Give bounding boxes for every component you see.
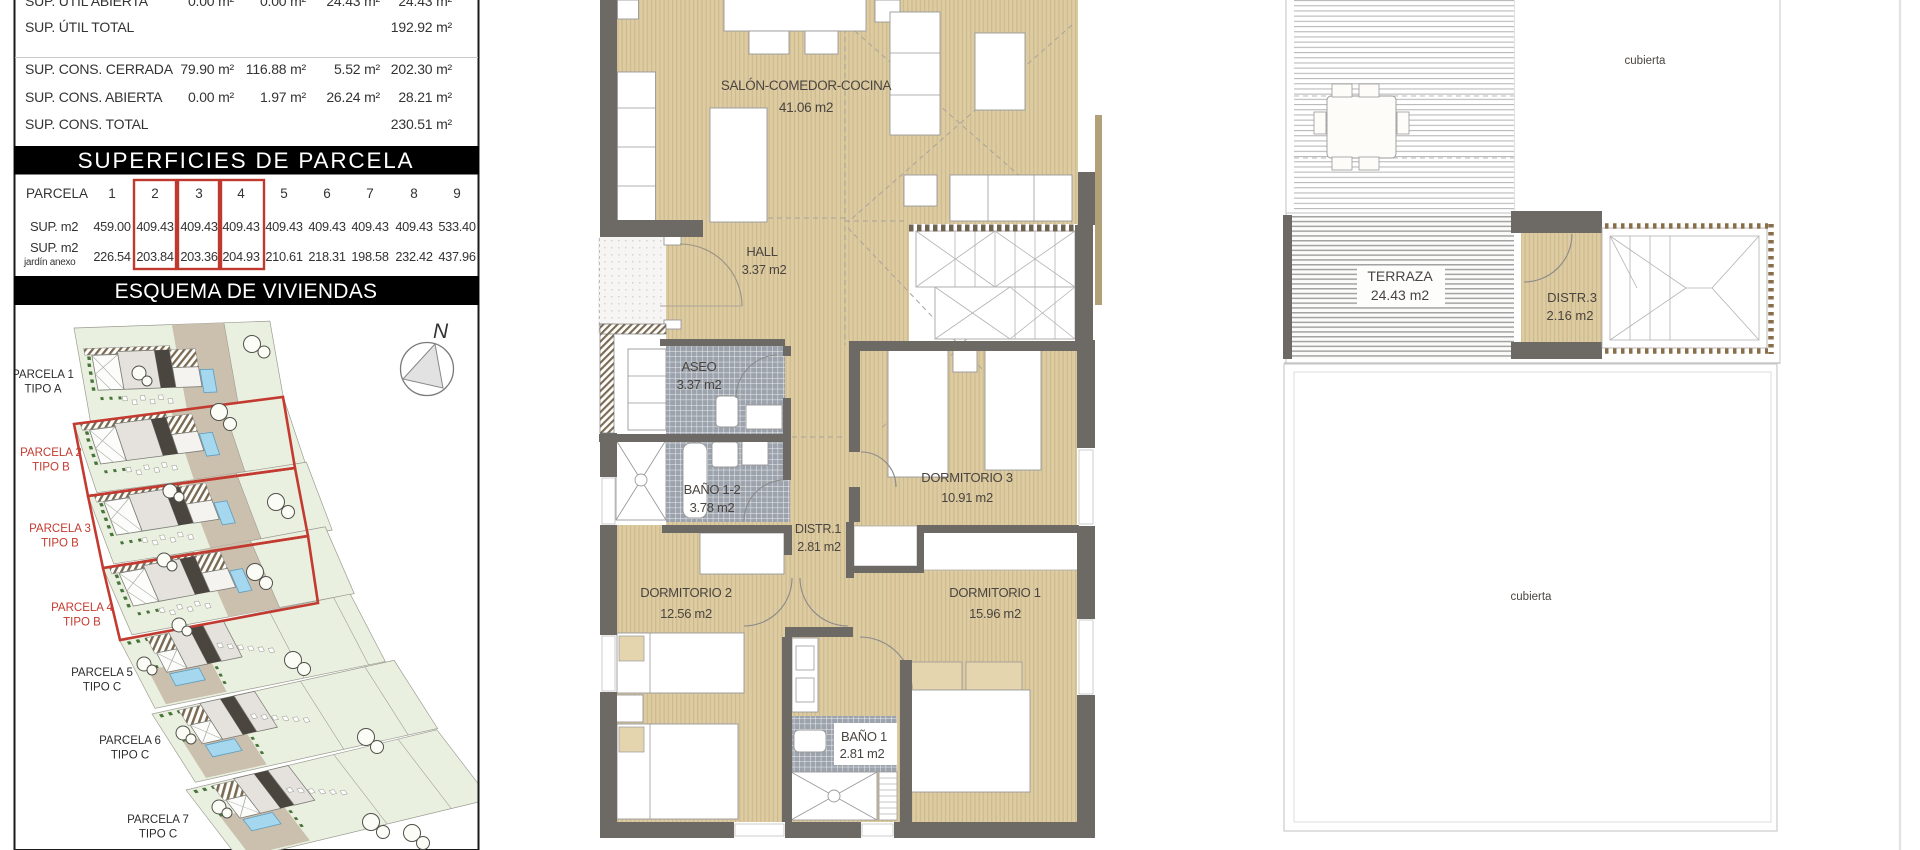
- svg-text:ESQUEMA DE VIVIENDAS: ESQUEMA DE VIVIENDAS: [115, 280, 378, 303]
- svg-text:41.06 m2: 41.06 m2: [779, 100, 833, 115]
- svg-text:5.52 m²: 5.52 m²: [334, 61, 381, 77]
- svg-text:459.00: 459.00: [93, 219, 131, 234]
- svg-text:409.43: 409.43: [351, 219, 389, 234]
- svg-text:BAÑO 1: BAÑO 1: [841, 729, 887, 744]
- svg-text:437.96: 437.96: [438, 249, 476, 264]
- svg-text:TIPO B: TIPO B: [41, 538, 79, 550]
- svg-text:0.00 m²: 0.00 m²: [188, 89, 235, 105]
- svg-text:218.31: 218.31: [308, 249, 346, 264]
- svg-text:SUPERFICIES DE PARCELA: SUPERFICIES DE PARCELA: [78, 148, 415, 173]
- svg-text:SUP. m2: SUP. m2: [30, 219, 78, 234]
- svg-text:DORMITORIO 3: DORMITORIO 3: [921, 470, 1013, 485]
- svg-text:2.81 m2: 2.81 m2: [797, 540, 841, 554]
- svg-text:232.42: 232.42: [395, 249, 433, 264]
- svg-text:HALL: HALL: [746, 244, 777, 259]
- svg-text:5: 5: [280, 186, 288, 201]
- svg-text:116.88 m²: 116.88 m²: [246, 61, 307, 77]
- svg-text:3.37 m2: 3.37 m2: [677, 377, 722, 392]
- svg-text:409.43: 409.43: [222, 219, 260, 234]
- svg-text:28.21 m²: 28.21 m²: [398, 89, 452, 105]
- svg-text:DORMITORIO 1: DORMITORIO 1: [949, 585, 1041, 600]
- svg-text:203.36: 203.36: [180, 249, 218, 264]
- svg-text:9: 9: [453, 186, 461, 201]
- svg-text:202.30 m²: 202.30 m²: [391, 61, 453, 77]
- svg-text:3: 3: [195, 186, 203, 201]
- svg-text:2.16 m2: 2.16 m2: [1547, 308, 1594, 323]
- svg-text:12.56 m2: 12.56 m2: [660, 606, 712, 621]
- svg-text:409.43: 409.43: [136, 219, 174, 234]
- svg-text:cubierta: cubierta: [1625, 55, 1667, 67]
- svg-text:7: 7: [366, 186, 374, 201]
- svg-text:533.40: 533.40: [438, 219, 476, 234]
- svg-text:4: 4: [237, 186, 245, 201]
- svg-text:26.24 m²: 26.24 m²: [326, 89, 380, 105]
- svg-text:10.91 m2: 10.91 m2: [941, 490, 993, 505]
- svg-text:3.37 m2: 3.37 m2: [742, 262, 787, 277]
- svg-text:ASEO: ASEO: [682, 359, 717, 374]
- svg-text:SUP. m2: SUP. m2: [30, 240, 78, 255]
- svg-text:203.84: 203.84: [136, 249, 174, 264]
- svg-text:BAÑO 1-2: BAÑO 1-2: [684, 482, 741, 497]
- svg-text:PARCELA 7: PARCELA 7: [127, 814, 189, 826]
- svg-text:SUP. CONS. CERRADA: SUP. CONS. CERRADA: [25, 61, 174, 77]
- svg-text:8: 8: [410, 186, 418, 201]
- svg-text:6: 6: [323, 186, 331, 201]
- svg-text:79.90 m²: 79.90 m²: [180, 61, 234, 77]
- svg-text:15.96 m2: 15.96 m2: [969, 606, 1021, 621]
- svg-text:0.00 m²: 0.00 m²: [260, 0, 307, 9]
- svg-text:3.78 m2: 3.78 m2: [690, 500, 735, 515]
- svg-text:N: N: [433, 320, 449, 343]
- svg-text:409.43: 409.43: [395, 219, 433, 234]
- svg-text:2.81 m2: 2.81 m2: [840, 746, 885, 761]
- svg-text:TIPO C: TIPO C: [111, 750, 149, 762]
- svg-text:TERRAZA: TERRAZA: [1367, 268, 1433, 284]
- svg-text:PARCELA 2: PARCELA 2: [20, 447, 82, 459]
- svg-text:2: 2: [151, 186, 159, 201]
- svg-text:SUP. CONS. ABIERTA: SUP. CONS. ABIERTA: [25, 89, 163, 105]
- svg-text:SUP. ÚTIL TOTAL: SUP. ÚTIL TOTAL: [25, 19, 134, 35]
- svg-text:cubierta: cubierta: [1511, 591, 1553, 603]
- svg-text:PARCELA 1: PARCELA 1: [12, 369, 74, 381]
- svg-text:192.92 m²: 192.92 m²: [391, 19, 453, 35]
- svg-text:409.43: 409.43: [265, 219, 303, 234]
- svg-text:TIPO B: TIPO B: [32, 462, 70, 474]
- svg-text:210.61: 210.61: [265, 249, 303, 264]
- svg-text:DORMITORIO 2: DORMITORIO 2: [640, 585, 732, 600]
- svg-text:24.43 m2: 24.43 m2: [1371, 287, 1430, 303]
- svg-text:jardín anexo: jardín anexo: [23, 257, 76, 268]
- svg-text:226.54: 226.54: [93, 249, 131, 264]
- svg-text:TIPO C: TIPO C: [139, 829, 177, 841]
- svg-text:TIPO A: TIPO A: [24, 384, 61, 396]
- svg-text:230.51 m²: 230.51 m²: [391, 116, 453, 132]
- svg-text:DISTR.3: DISTR.3: [1547, 290, 1597, 305]
- svg-text:1: 1: [108, 186, 116, 201]
- svg-text:1.97 m²: 1.97 m²: [260, 89, 307, 105]
- svg-text:PARCELA 4: PARCELA 4: [51, 602, 113, 614]
- svg-text:0.00 m²: 0.00 m²: [188, 0, 235, 9]
- svg-text:SUP. CONS. TOTAL: SUP. CONS. TOTAL: [25, 116, 149, 132]
- svg-text:TIPO B: TIPO B: [63, 617, 101, 629]
- svg-text:24.43 m²: 24.43 m²: [326, 0, 380, 9]
- svg-text:24.43 m²: 24.43 m²: [398, 0, 452, 9]
- svg-text:SUP. ÚTIL ABIERTA: SUP. ÚTIL ABIERTA: [25, 0, 149, 9]
- svg-text:409.43: 409.43: [180, 219, 218, 234]
- svg-text:PARCELA 6: PARCELA 6: [99, 735, 161, 747]
- svg-text:204.93: 204.93: [222, 249, 260, 264]
- svg-text:409.43: 409.43: [308, 219, 346, 234]
- svg-text:198.58: 198.58: [351, 249, 389, 264]
- svg-text:TIPO C: TIPO C: [83, 682, 121, 694]
- svg-text:PARCELA 3: PARCELA 3: [29, 523, 91, 535]
- svg-text:DISTR.1: DISTR.1: [795, 522, 841, 536]
- svg-text:SALÓN-COMEDOR-COCINA: SALÓN-COMEDOR-COCINA: [721, 78, 892, 93]
- svg-text:PARCELA 5: PARCELA 5: [71, 667, 133, 679]
- svg-text:PARCELA: PARCELA: [26, 186, 88, 201]
